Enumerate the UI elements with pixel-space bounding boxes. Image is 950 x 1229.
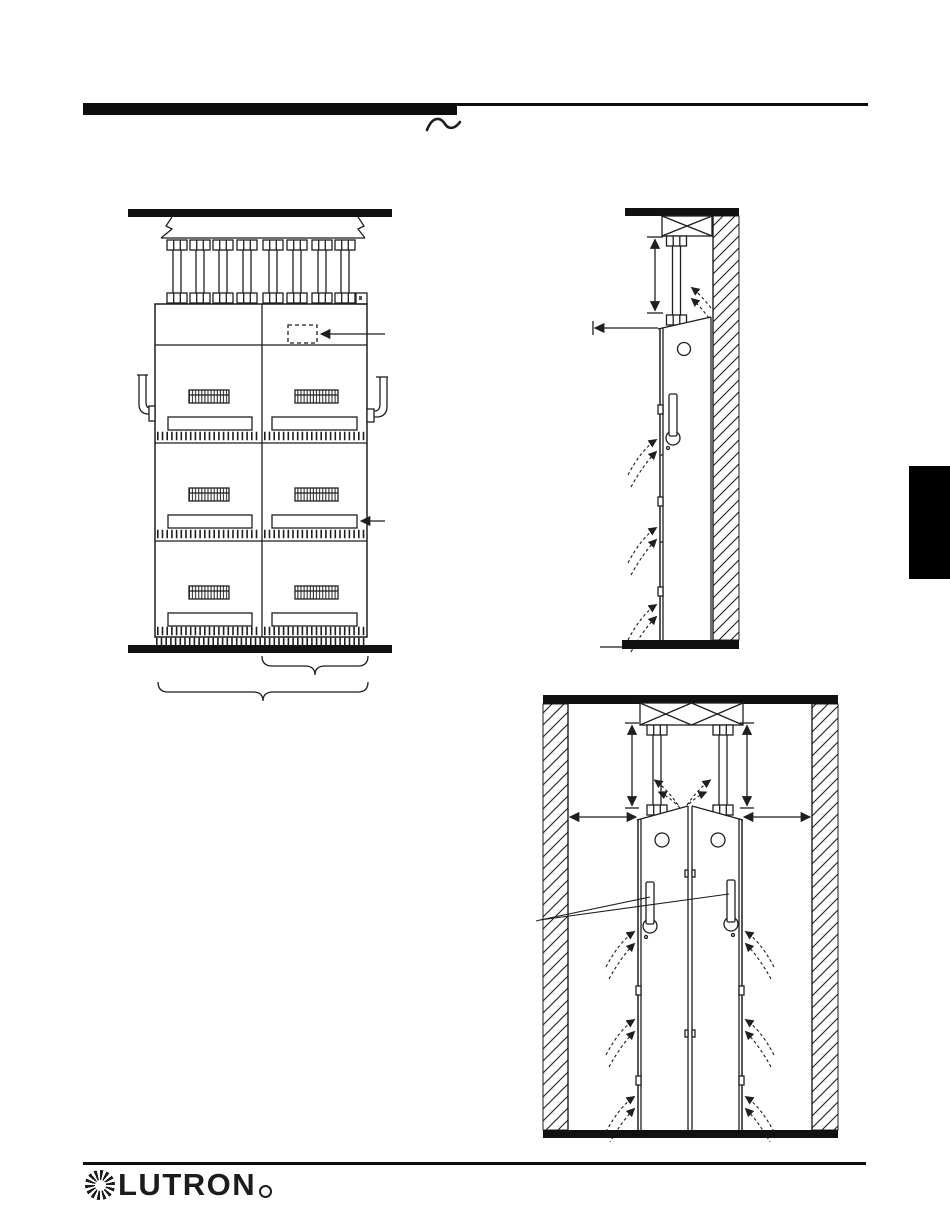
panel-side-profile [658, 317, 711, 640]
document-page: LUTRON [0, 0, 950, 1229]
right-conduit [713, 725, 733, 815]
figure-single-panel-side-view [585, 198, 745, 656]
conduit-length-dimension [647, 237, 663, 313]
ceiling-bar [625, 208, 739, 216]
corner-junction-box [356, 293, 367, 304]
dashed-knockout-callout [288, 325, 385, 343]
center-airflow-arrows [655, 780, 711, 808]
lutron-sunburst-icon [85, 1170, 115, 1200]
vent-rows [156, 436, 366, 642]
cross-braced-support [640, 703, 743, 725]
top-conduits [167, 240, 355, 303]
floor-bar [128, 645, 392, 653]
lutron-logo: LUTRON [85, 1170, 272, 1200]
right-side-conduit-elbow [367, 377, 388, 422]
left-conduit [647, 725, 667, 815]
left-panel-profile [636, 806, 688, 1130]
wall-section [713, 216, 739, 640]
figure-panel-bank-front-view [120, 198, 405, 710]
terminal-strips [189, 390, 338, 599]
left-conduit-dimension [625, 723, 639, 808]
conduit [667, 236, 687, 325]
lutron-logo-text: LUTRON [118, 1170, 256, 1200]
right-conduit-dimension [740, 723, 754, 808]
footer-rule [83, 1162, 866, 1165]
section-header-bar [83, 103, 457, 115]
width-braces [158, 656, 368, 701]
header-rule [457, 103, 868, 106]
right-wall-section [812, 704, 838, 1130]
chapter-side-tab [909, 466, 950, 579]
cross-braced-support [662, 216, 712, 236]
figure-back-to-back-panels-view [530, 690, 845, 1142]
floor-bar [543, 1130, 838, 1138]
floor-bar [600, 640, 739, 649]
right-panel-profile [692, 806, 744, 1130]
section-break-squiggle-icon [424, 114, 464, 140]
left-side-conduit-elbow [137, 375, 155, 421]
registered-trademark-icon [259, 1185, 272, 1198]
ceiling-bar [128, 209, 392, 238]
side-airflow-arrows [606, 932, 774, 1143]
front-clearance-dimension [593, 321, 658, 335]
